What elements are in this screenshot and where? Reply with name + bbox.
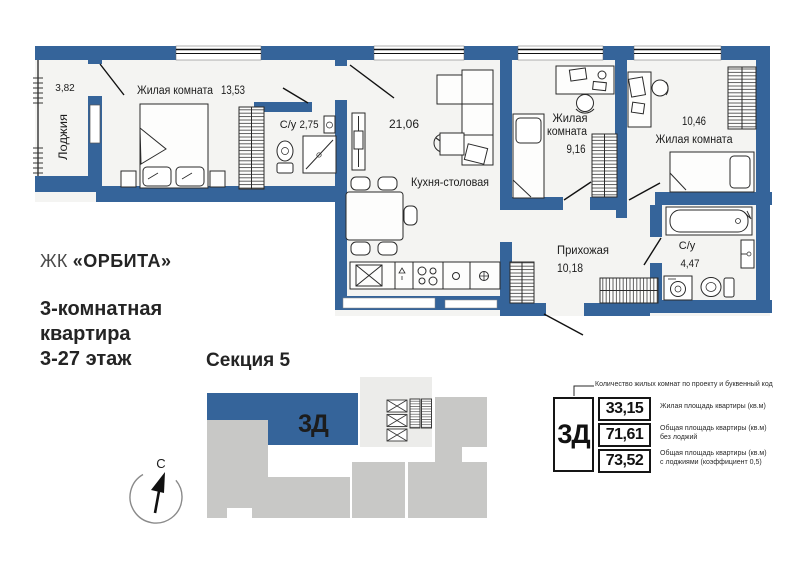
room3-area-label: 10,46 [682, 116, 706, 128]
elevator-icon [387, 429, 407, 441]
window-icon [176, 46, 261, 60]
hob-icon [480, 272, 490, 281]
loggia-label: Лоджия [58, 114, 70, 160]
floor-plan-graphic: 3,82 Лоджия Жилая комната 13,53 С/у 2,75… [0, 0, 800, 566]
legend-unit-code: 3Д [553, 397, 594, 472]
toilet-icon [277, 141, 293, 173]
compass-arrow-icon [151, 472, 165, 493]
elevator-icon [387, 415, 407, 427]
wardrobe-icon [600, 278, 658, 303]
legend-desc-2: Общая площадь квартиры (кв.м) без лоджий [660, 425, 767, 442]
apartment-title-line3: 3-27 этаж [40, 347, 162, 372]
legend-desc-3-line1: Общая площадь квартиры (кв.м) [660, 450, 767, 459]
wardrobe-icon [728, 67, 756, 129]
bath2-area-label: 4,47 [681, 258, 700, 270]
section-footprint: 3Д [207, 377, 487, 518]
room2-area-label: 9,16 [567, 144, 586, 156]
compass-needle-icon [155, 491, 159, 513]
window-icon [343, 298, 435, 308]
legend-desc-3-line2: с лоджиями (коэффициент 0,5) [660, 459, 767, 468]
legend-value-total-area-loggia: 73,52 [598, 449, 651, 473]
wardrobe-icon [239, 107, 264, 189]
elevator-icon [387, 400, 407, 412]
room1-area-label: 13,53 [221, 85, 245, 97]
washbasin-icon [324, 116, 335, 133]
elevator-icons [387, 400, 407, 441]
room1-furniture [121, 104, 264, 189]
room2-label-line2: комната [547, 126, 588, 138]
compass-north-label: С [156, 456, 165, 471]
bath1-area-label: 2,75 [300, 119, 319, 131]
legend-desc-2-line2: без лоджий [660, 434, 767, 443]
legend-desc-1: Жилая площадь квартиры (кв.м) [660, 403, 766, 412]
window-icon [445, 300, 497, 308]
shower-icon [303, 136, 336, 173]
sink-icon [741, 240, 754, 268]
bath2-label: С/у [679, 240, 696, 252]
legend-desc-1-line1: Жилая площадь квартиры (кв.м) [660, 403, 766, 412]
project-name: «ОРБИТА» [73, 251, 172, 271]
legend-connector-line [574, 386, 594, 396]
toilet-icon [701, 278, 734, 298]
window-icon [90, 105, 100, 143]
closet-icon [510, 262, 534, 303]
apartment-title-line1: 3-комнатная [40, 297, 162, 322]
legend-value-total-area: 71,61 [598, 423, 651, 447]
apartment-title-line2: квартира [40, 322, 162, 347]
legend-value-living-area: 33,15 [598, 397, 651, 421]
room2-label-line1: Жилая [553, 113, 588, 125]
bathtub-icon [666, 207, 752, 235]
bed-icon [670, 152, 754, 192]
kitchen-counter-icon [350, 262, 500, 289]
sink-icon [356, 265, 382, 286]
legend-desc-2-line1: Общая площадь квартиры (кв.м) [660, 425, 767, 434]
legend-annotation: Количество жилых комнат по проекту и бук… [595, 381, 773, 388]
project-title: ЖК «ОРБИТА» [40, 251, 171, 272]
apartment-title: 3-комнатная квартира 3-27 этаж [40, 297, 162, 372]
desk-icon [628, 72, 651, 127]
bath1-label: С/у [280, 119, 297, 131]
window-icon [374, 46, 464, 60]
window-icon [634, 46, 721, 60]
tv-unit-icon [352, 113, 365, 170]
room3-label: Жилая комната [656, 134, 734, 146]
loggia-area-label: 3,82 [55, 83, 75, 94]
window-icon [518, 46, 603, 60]
hall-label: Прихожая [557, 245, 609, 257]
hall-area-label: 10,18 [557, 263, 583, 275]
kitchen-area-label: 21,06 [389, 117, 419, 131]
room1-label: Жилая комната [137, 85, 214, 97]
washing-machine-icon [664, 276, 692, 300]
bed-icon [513, 114, 544, 198]
desk-icon [556, 66, 614, 94]
apartment-card: 3,82 Лоджия Жилая комната 13,53 С/у 2,75… [0, 0, 800, 566]
wardrobe-icon [592, 134, 617, 197]
legend-desc-3: Общая площадь квартиры (кв.м) с лоджиями… [660, 450, 767, 467]
project-prefix: ЖК [40, 251, 68, 271]
compass: С [130, 456, 182, 523]
unit-code-label: 3Д [298, 410, 329, 438]
section-title: Секция 5 [206, 350, 290, 372]
kitchen-label: Кухня-столовая [411, 175, 489, 189]
chair-icon [652, 80, 668, 96]
